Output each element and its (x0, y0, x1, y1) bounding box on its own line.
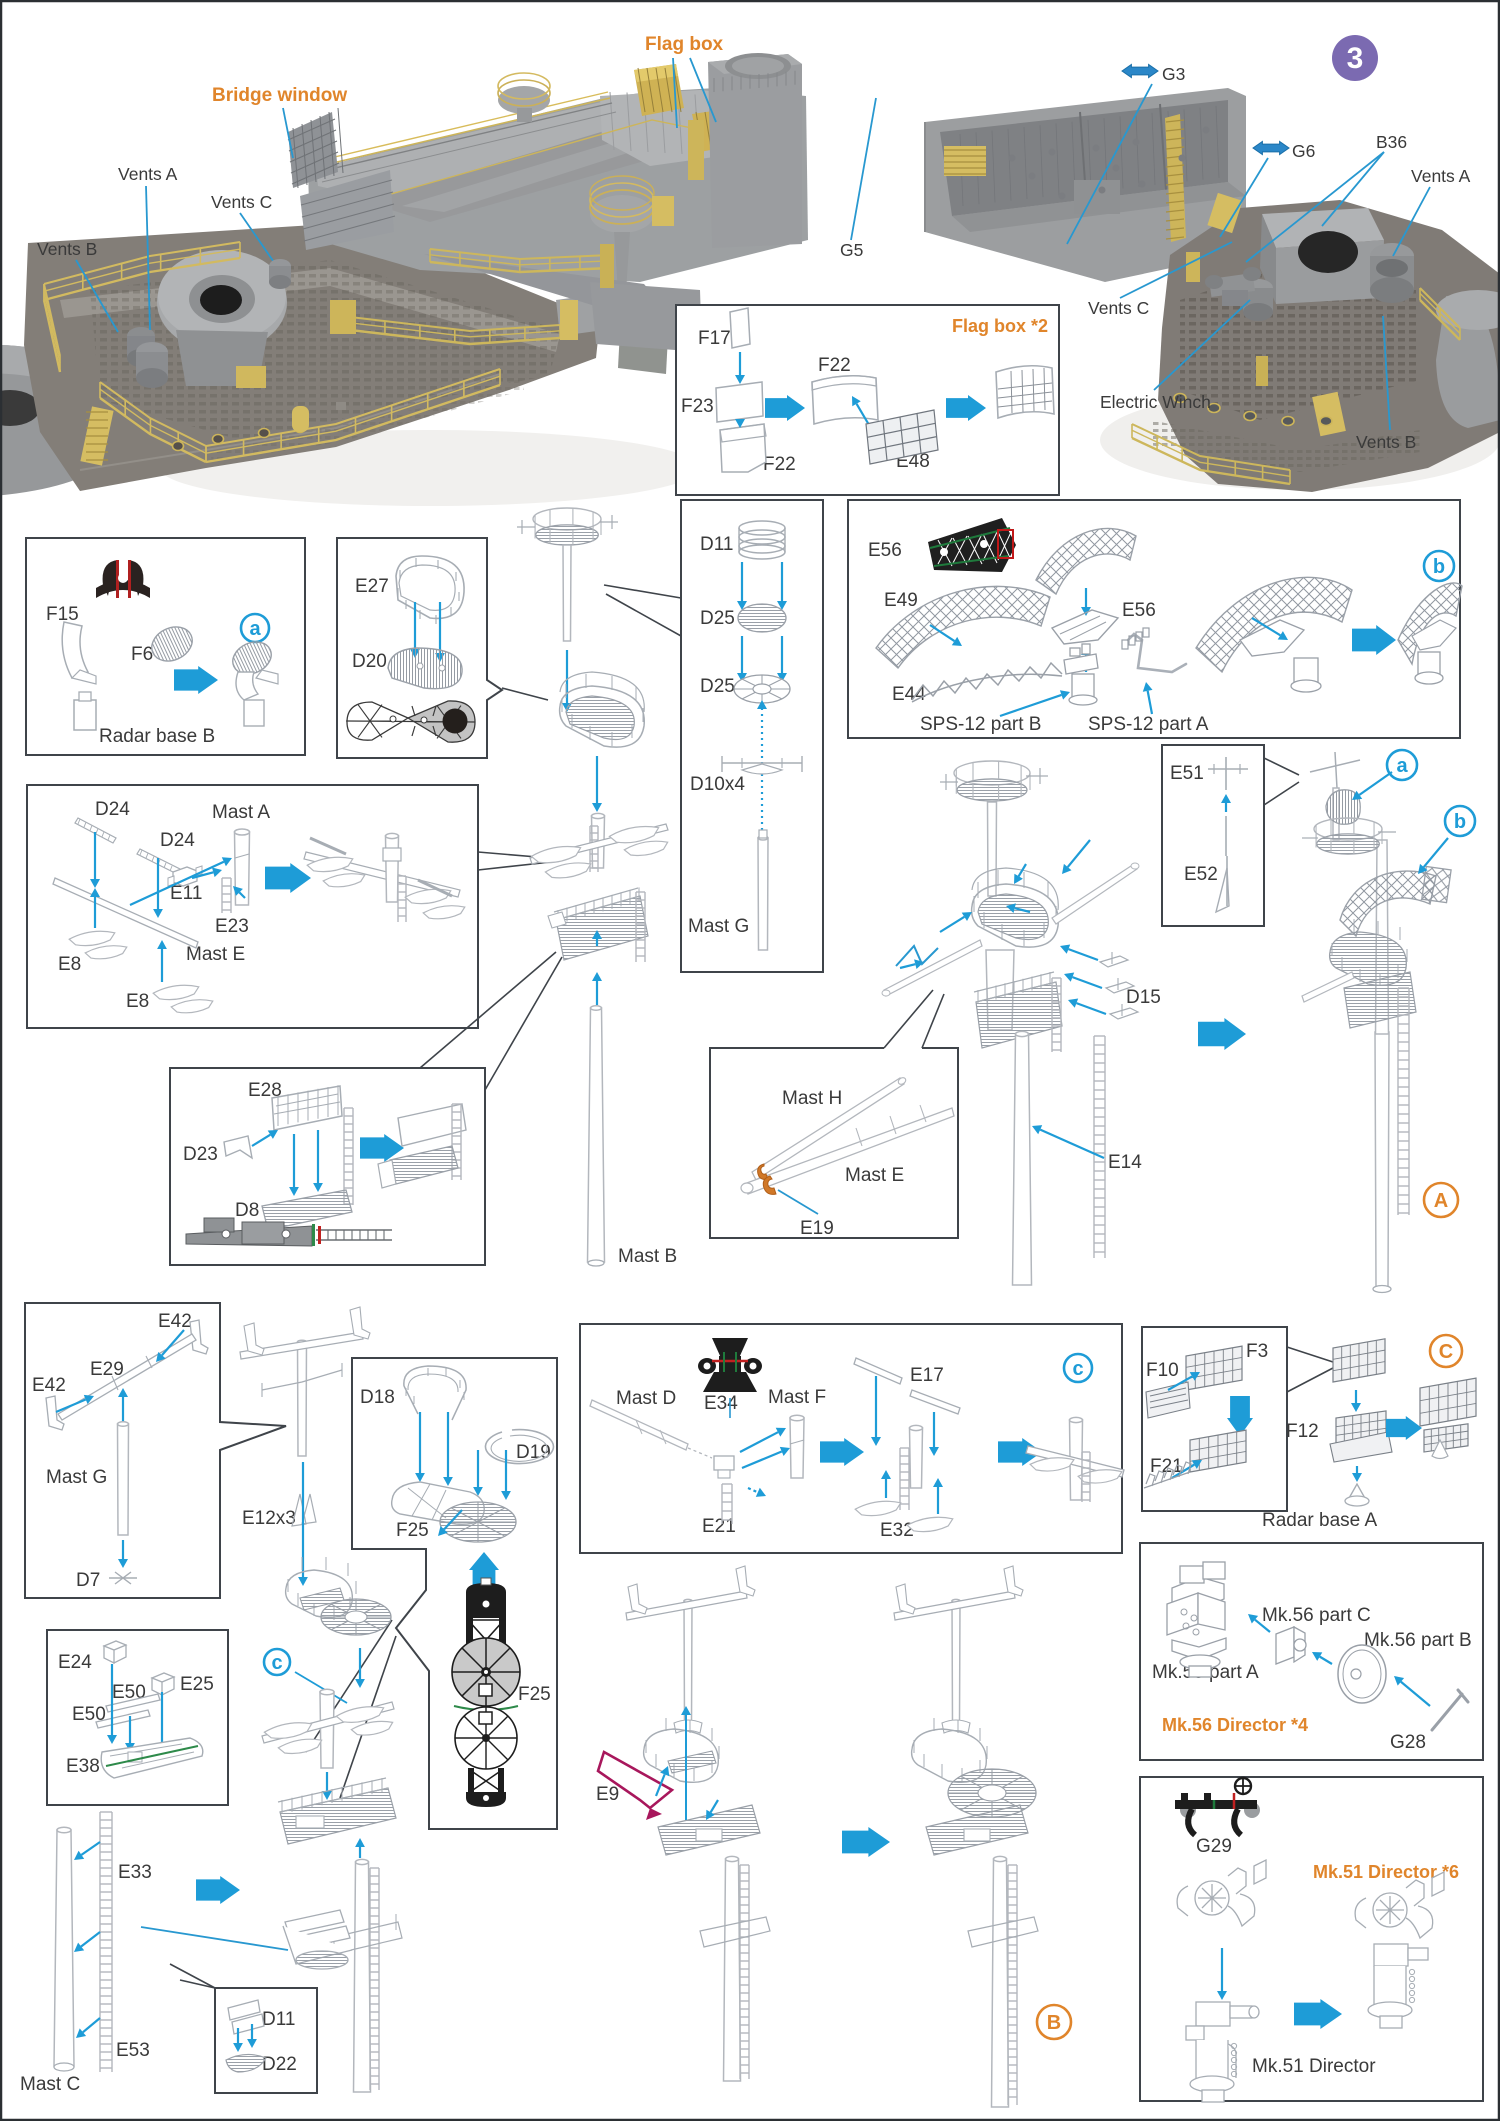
svg-text:E25: E25 (180, 1674, 214, 1695)
svg-text:Mast D: Mast D (616, 1388, 676, 1409)
svg-text:D18: D18 (360, 1387, 395, 1408)
svg-text:Electric Winch: Electric Winch (1100, 392, 1211, 412)
svg-text:F22: F22 (818, 355, 851, 376)
svg-text:E21: E21 (702, 1516, 736, 1537)
svg-text:Mk.56 part C: Mk.56 part C (1262, 1605, 1371, 1626)
svg-text:F10: F10 (1146, 1360, 1179, 1381)
svg-text:F23: F23 (681, 396, 714, 417)
svg-text:D15: D15 (1126, 987, 1161, 1008)
svg-text:D7: D7 (76, 1570, 100, 1591)
svg-text:E33: E33 (118, 1862, 152, 1883)
svg-text:Vents C: Vents C (211, 192, 272, 212)
svg-text:B36: B36 (1376, 132, 1407, 152)
svg-text:D24: D24 (95, 799, 130, 820)
svg-text:b: b (1433, 556, 1445, 578)
svg-text:E34: E34 (704, 1393, 738, 1414)
svg-text:Vents B: Vents B (37, 239, 97, 259)
svg-text:F25: F25 (518, 1684, 551, 1705)
svg-text:D11: D11 (262, 2009, 295, 2030)
svg-text:E38: E38 (66, 1756, 100, 1777)
svg-text:D23: D23 (183, 1144, 218, 1165)
svg-text:F17: F17 (698, 328, 731, 349)
svg-text:SPS-12 part A: SPS-12 part A (1088, 714, 1209, 735)
svg-text:Vents B: Vents B (1356, 432, 1416, 452)
svg-text:E14: E14 (1108, 1152, 1142, 1173)
svg-text:Mast F: Mast F (768, 1387, 826, 1408)
svg-text:E17: E17 (910, 1365, 944, 1386)
svg-text:F25: F25 (396, 1520, 429, 1541)
svg-text:G29: G29 (1196, 1836, 1232, 1857)
svg-text:Bridge window: Bridge window (212, 85, 347, 106)
svg-text:E53: E53 (116, 2040, 150, 2061)
svg-text:E51: E51 (1170, 763, 1204, 784)
svg-text:E49: E49 (884, 590, 918, 611)
svg-text:D8: D8 (235, 1200, 259, 1221)
svg-text:Vents A: Vents A (118, 164, 178, 184)
svg-text:Mk.56 part B: Mk.56 part B (1364, 1630, 1472, 1651)
svg-text:Mk.56 Director *4: Mk.56 Director *4 (1162, 1715, 1308, 1735)
svg-text:D11: D11 (700, 534, 733, 555)
svg-text:E32: E32 (880, 1520, 914, 1541)
svg-text:D24: D24 (160, 830, 195, 851)
svg-text:3: 3 (1347, 42, 1364, 75)
svg-text:Vents A: Vents A (1411, 166, 1471, 186)
svg-text:G5: G5 (840, 240, 863, 260)
svg-text:E23: E23 (215, 916, 249, 937)
svg-text:E24: E24 (58, 1652, 92, 1673)
svg-text:F22: F22 (763, 454, 796, 475)
svg-text:E8: E8 (126, 991, 149, 1012)
svg-text:c: c (1072, 1358, 1083, 1380)
svg-text:F15: F15 (46, 604, 79, 625)
svg-text:E19: E19 (800, 1218, 834, 1239)
svg-text:b: b (1454, 811, 1466, 833)
svg-text:Radar base B: Radar base B (99, 726, 215, 747)
svg-text:G3: G3 (1162, 64, 1185, 84)
svg-text:c: c (271, 1652, 282, 1674)
svg-text:E42: E42 (32, 1375, 66, 1396)
svg-text:Flag box *2: Flag box *2 (952, 316, 1048, 336)
svg-text:E12x3: E12x3 (242, 1508, 296, 1529)
svg-text:G28: G28 (1390, 1732, 1426, 1753)
svg-text:D22: D22 (262, 2054, 297, 2075)
svg-text:Vents C: Vents C (1088, 298, 1149, 318)
svg-text:Mast H: Mast H (782, 1088, 842, 1109)
svg-text:Mk.51 Director: Mk.51 Director (1252, 2056, 1376, 2077)
svg-text:G6: G6 (1292, 141, 1315, 161)
svg-text:Flag box: Flag box (645, 34, 724, 55)
svg-text:SPS-12 part B: SPS-12 part B (920, 714, 1041, 735)
svg-text:D25: D25 (700, 676, 735, 697)
svg-text:Mast G: Mast G (46, 1467, 107, 1488)
svg-text:Mast A: Mast A (212, 802, 270, 823)
svg-text:A: A (1434, 1190, 1448, 1212)
svg-text:F3: F3 (1246, 1341, 1268, 1362)
svg-text:C: C (1439, 1341, 1453, 1363)
svg-text:F6: F6 (131, 644, 153, 665)
svg-text:E52: E52 (1184, 864, 1218, 885)
svg-text:Radar base A: Radar base A (1262, 1510, 1377, 1531)
svg-text:F12: F12 (1286, 1421, 1319, 1442)
svg-text:E27: E27 (355, 576, 389, 597)
svg-text:E11: E11 (170, 883, 202, 904)
svg-text:a: a (249, 618, 261, 640)
svg-text:E56: E56 (1122, 600, 1156, 621)
svg-text:D20: D20 (352, 651, 387, 672)
svg-text:Mast C: Mast C (20, 2074, 80, 2095)
svg-text:Mast G: Mast G (688, 916, 749, 937)
svg-text:Mast B: Mast B (618, 1246, 677, 1267)
svg-text:E29: E29 (90, 1359, 124, 1380)
svg-text:B: B (1047, 2012, 1061, 2034)
svg-text:Mast E: Mast E (845, 1165, 904, 1186)
svg-text:D10x4: D10x4 (690, 774, 745, 795)
svg-text:E56: E56 (868, 540, 902, 561)
svg-text:E8: E8 (58, 954, 81, 975)
svg-text:a: a (1396, 755, 1408, 777)
svg-text:E42: E42 (158, 1311, 192, 1332)
svg-text:E9: E9 (596, 1784, 619, 1805)
svg-text:D25: D25 (700, 608, 735, 629)
